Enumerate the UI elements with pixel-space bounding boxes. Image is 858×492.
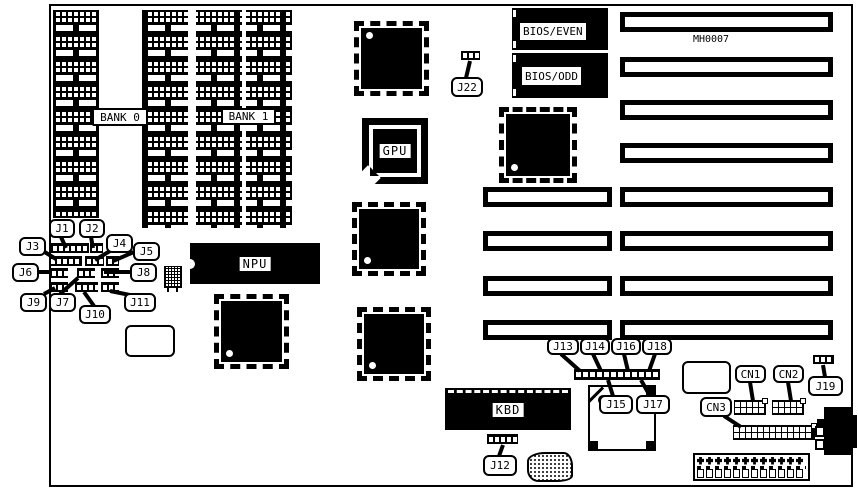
pin1-dot bbox=[364, 257, 371, 264]
qfp-chip bbox=[221, 301, 282, 362]
jumper-strip-j5 bbox=[106, 256, 119, 266]
expansion-slot bbox=[620, 100, 833, 120]
jumper-strip-j8 bbox=[101, 268, 119, 278]
gpu-socket: GPU bbox=[362, 118, 428, 184]
jumper-label-j2: J2 bbox=[79, 219, 105, 238]
kbd-chip: KBD bbox=[445, 388, 571, 430]
power-pins-row bbox=[697, 456, 806, 465]
jumper-label-j14: J14 bbox=[580, 338, 610, 355]
expansion-slot bbox=[620, 187, 833, 207]
qfp-chip bbox=[361, 28, 422, 89]
board-id-label: MH0007 bbox=[684, 33, 738, 45]
qfp-chip bbox=[364, 314, 424, 374]
jumper-label-j15: J15 bbox=[599, 395, 633, 414]
jumper-label-j18: J18 bbox=[642, 338, 672, 355]
jumper-strip-j11 bbox=[101, 282, 119, 292]
oscillator bbox=[682, 361, 731, 394]
expansion-slot bbox=[620, 57, 833, 77]
connector-label-cn3: CN3 bbox=[700, 397, 732, 417]
jumper-strip-j4 bbox=[85, 256, 104, 266]
heatsink-leg bbox=[176, 288, 178, 292]
jumper-strip-j2 bbox=[90, 243, 103, 253]
cn1-header bbox=[734, 400, 766, 415]
speaker-pad bbox=[527, 452, 573, 482]
expansion-slot bbox=[620, 143, 833, 163]
chip-notch bbox=[513, 10, 516, 17]
qfp-chip bbox=[506, 114, 570, 176]
jumper-strip-j19 bbox=[813, 355, 834, 364]
qfp-chip bbox=[359, 209, 419, 269]
keyboard-connector bbox=[824, 407, 851, 455]
expansion-slot-16bit-ext bbox=[483, 187, 612, 207]
jumper-label-j5: J5 bbox=[133, 242, 160, 261]
socket-corner bbox=[646, 386, 655, 395]
pin1-dot bbox=[366, 32, 373, 39]
jumper-label-j22: J22 bbox=[451, 77, 483, 97]
bios-even-chip: BIOS/EVEN bbox=[512, 8, 608, 50]
jumper-label-j10: J10 bbox=[79, 305, 111, 324]
connector-label-cn1: CN1 bbox=[735, 365, 766, 383]
bios-even-label: BIOS/EVEN bbox=[520, 23, 586, 40]
chip-notch bbox=[185, 259, 195, 269]
socket-corner bbox=[589, 441, 598, 450]
npu-chip: NPU bbox=[190, 243, 320, 284]
chip-notch bbox=[513, 55, 516, 62]
jumper-label-j13: J13 bbox=[547, 338, 579, 355]
jumper-label-j16: J16 bbox=[611, 338, 641, 355]
pin1-dot bbox=[226, 350, 233, 357]
power-holes-row bbox=[697, 468, 806, 478]
jumper-label-j19: J19 bbox=[808, 376, 843, 396]
jumper-label-j6: J6 bbox=[12, 263, 39, 282]
jumper-strip-j7 bbox=[77, 268, 95, 278]
expansion-slot bbox=[620, 231, 833, 251]
keyboard-connector-tab bbox=[851, 415, 857, 448]
jumper-strip-j3 bbox=[49, 256, 82, 266]
npu-label: NPU bbox=[240, 257, 271, 271]
jumper-label-j11: J11 bbox=[124, 293, 156, 312]
jumper-label-j12: J12 bbox=[483, 455, 517, 476]
jumper-strip-j22 bbox=[461, 51, 480, 60]
jumper-strip-j12 bbox=[487, 434, 518, 444]
jumper-label-j3: J3 bbox=[19, 237, 46, 256]
expansion-slot bbox=[620, 276, 833, 296]
oscillator bbox=[125, 325, 175, 357]
heatsink-leg bbox=[167, 288, 169, 292]
keyboard-connector-pin bbox=[815, 439, 825, 450]
bank1-label: BANK 1 bbox=[221, 108, 276, 125]
expansion-slot-16bit-ext bbox=[483, 231, 612, 251]
bank0-label: BANK 0 bbox=[92, 108, 148, 126]
expansion-slot-16bit-ext bbox=[483, 276, 612, 296]
keyboard-connector-pin bbox=[815, 426, 825, 437]
memory-column bbox=[142, 10, 188, 228]
motherboard-diagram: MH0007 GPU NPU KBD BIOS/EVEN BIOS/ODD bbox=[0, 0, 858, 492]
jumper-strip-j1 bbox=[51, 243, 89, 253]
cn2-header bbox=[772, 400, 804, 415]
gpu-label: GPU bbox=[380, 144, 411, 158]
chip-pin-row bbox=[448, 390, 568, 393]
jumper-strip-j9 bbox=[50, 282, 68, 292]
jumper-strip-j6 bbox=[50, 268, 68, 278]
chip-notch bbox=[513, 89, 516, 96]
cn3-header bbox=[733, 425, 815, 440]
connector-label-cn2: CN2 bbox=[773, 365, 804, 383]
jumper-label-j1: J1 bbox=[49, 219, 75, 238]
chip-notch bbox=[513, 41, 516, 48]
heatsink bbox=[164, 266, 182, 288]
pin1-dot bbox=[369, 362, 376, 369]
jumper-label-j7: J7 bbox=[49, 293, 76, 312]
jumper-label-j17: J17 bbox=[636, 395, 670, 414]
expansion-slot bbox=[620, 12, 833, 32]
expansion-slot bbox=[620, 320, 833, 340]
bios-odd-label: BIOS/ODD bbox=[522, 67, 581, 85]
kbd-label: KBD bbox=[493, 403, 524, 417]
power-connector bbox=[693, 453, 810, 481]
pin1-dot bbox=[511, 164, 518, 171]
jumper-strip-j13-j18 bbox=[574, 369, 660, 380]
jumper-label-j4: J4 bbox=[106, 234, 133, 253]
pin1-arrow-icon bbox=[370, 167, 379, 176]
expansion-slot-16bit-ext bbox=[483, 320, 612, 340]
bios-odd-chip: BIOS/ODD bbox=[512, 53, 608, 98]
socket-corner bbox=[646, 441, 655, 450]
jumper-strip-j10 bbox=[75, 282, 98, 292]
jumper-label-j8: J8 bbox=[130, 263, 157, 282]
jumper-label-j9: J9 bbox=[20, 293, 47, 312]
